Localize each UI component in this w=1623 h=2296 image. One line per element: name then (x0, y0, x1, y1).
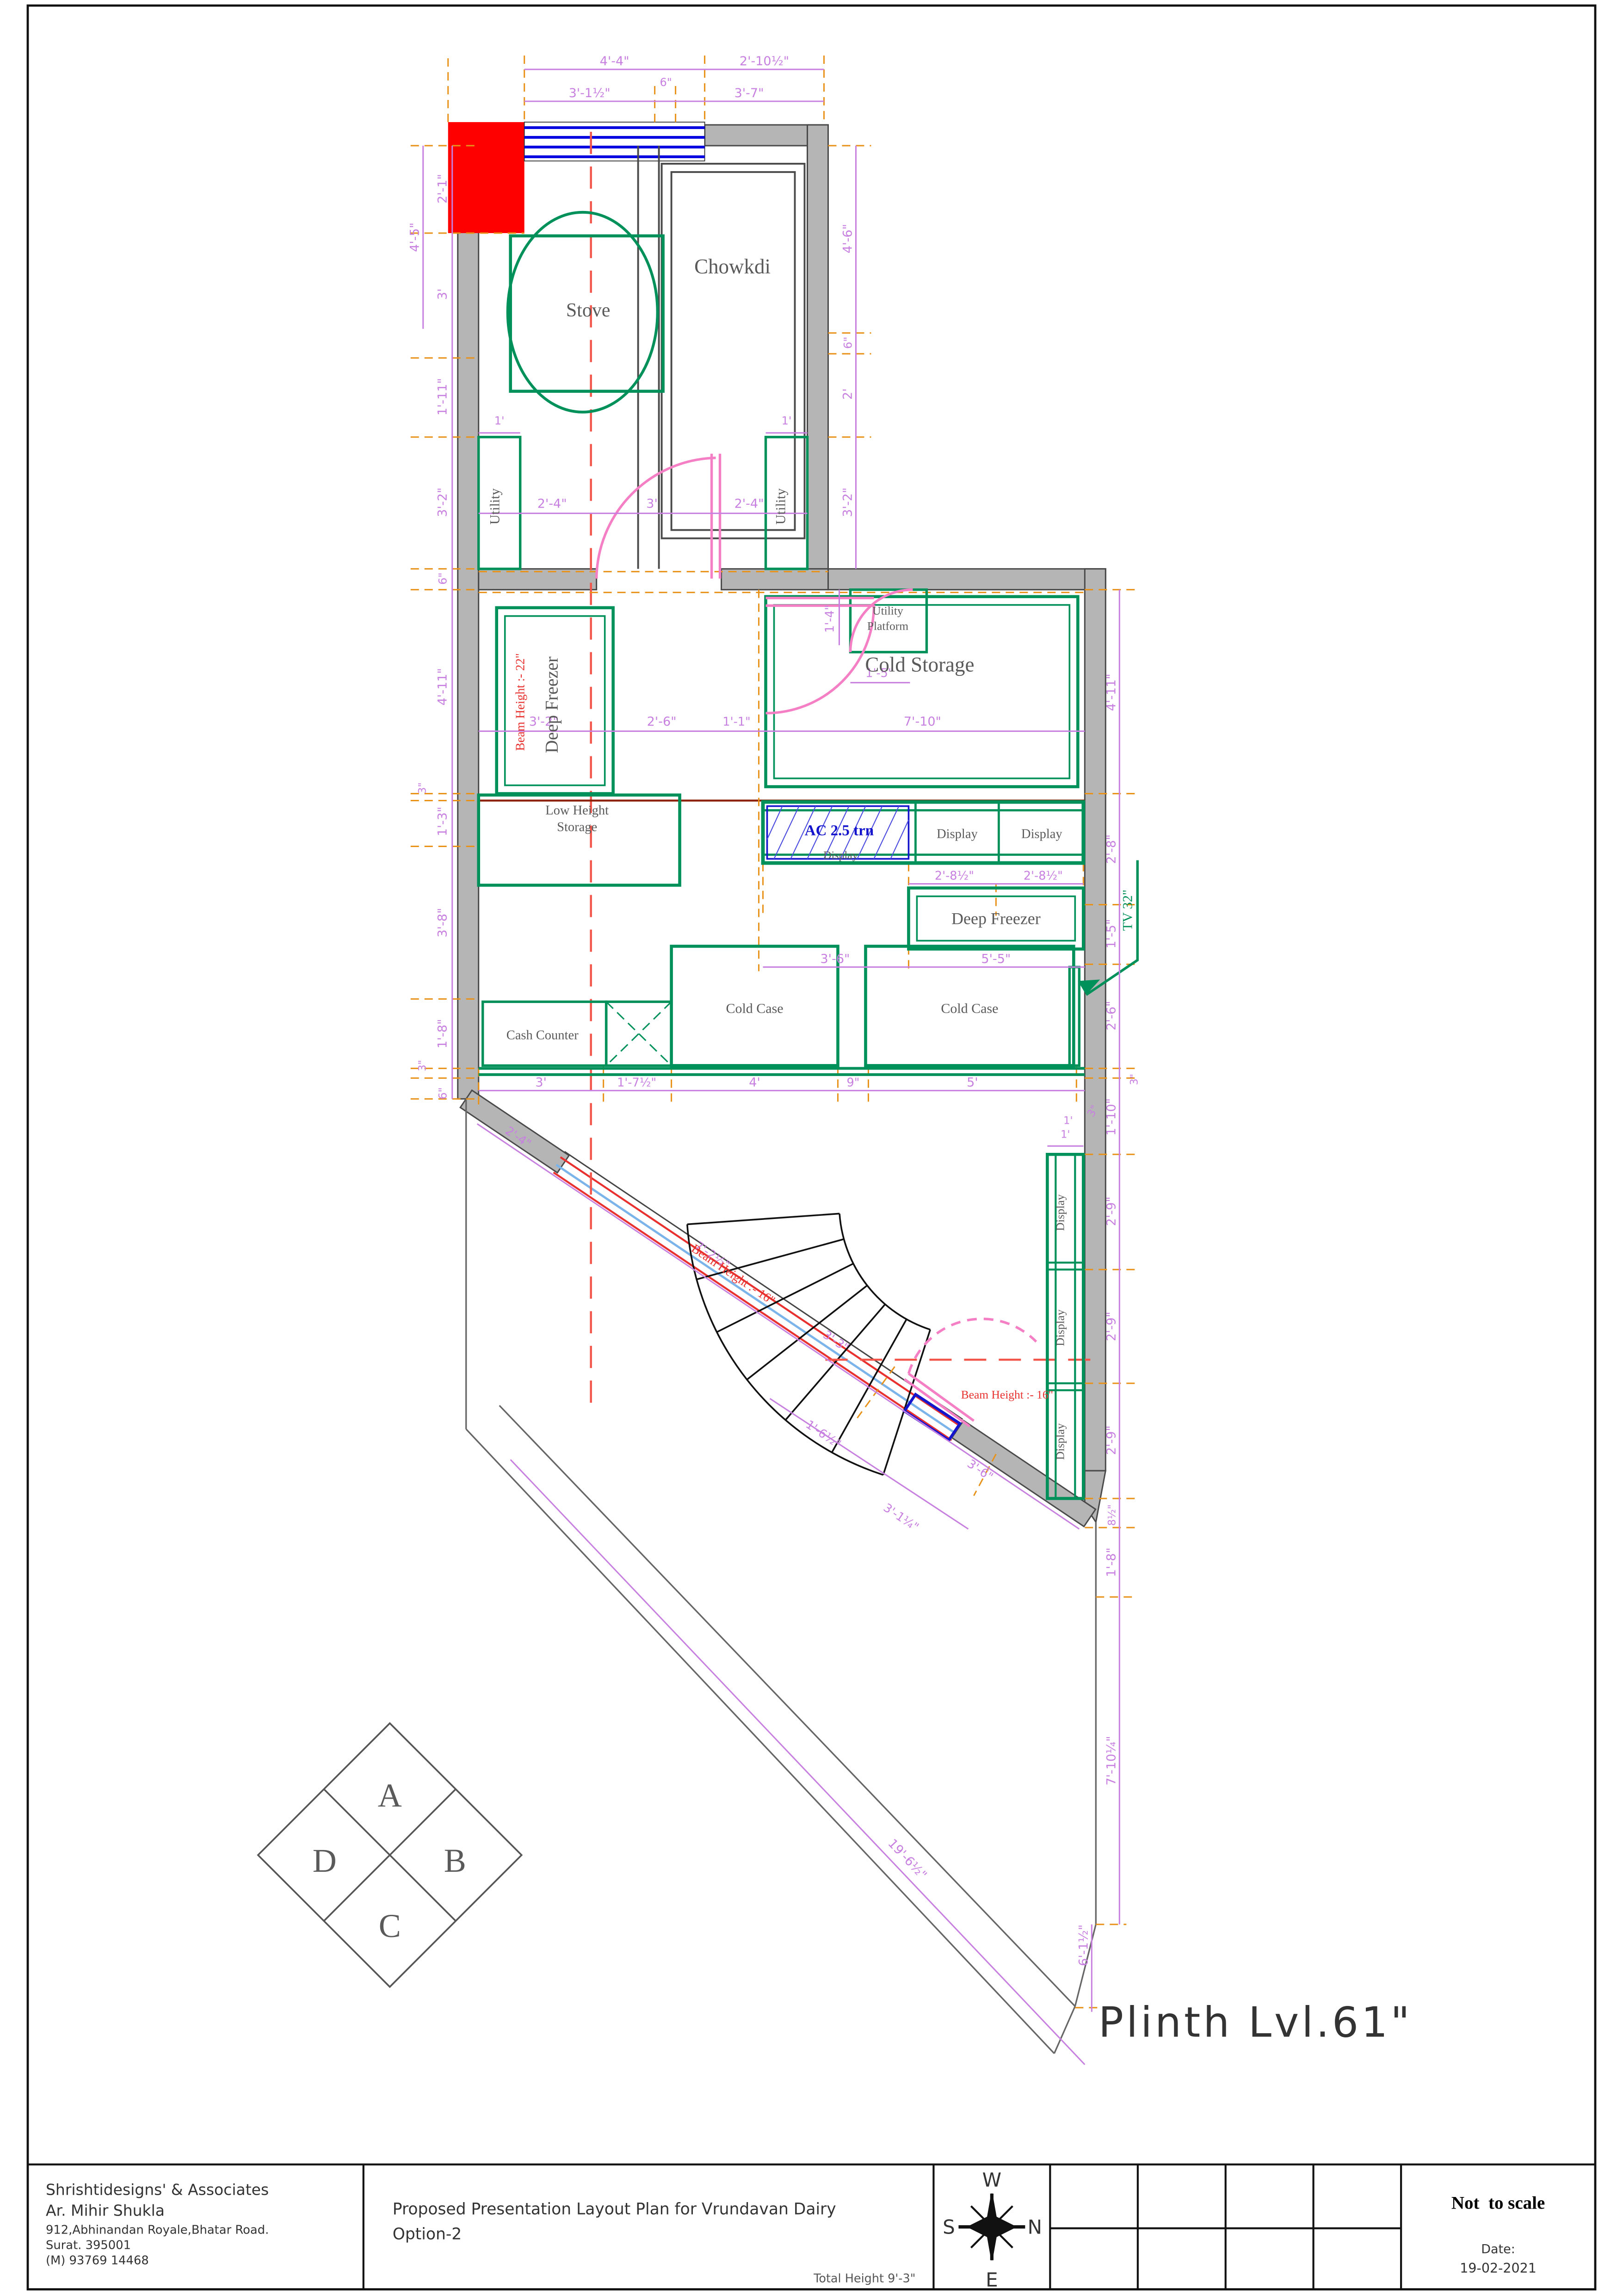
dims-right_outer-12: 7'-10¼" (1104, 1736, 1118, 1785)
direction_diamond-c: C (379, 1907, 401, 1944)
dims-counter_row-1: 1'-7½" (617, 1076, 656, 1089)
dims-freezer_row-0: 3'-6" (821, 952, 850, 966)
dims-top-0: 4'-4" (600, 54, 629, 68)
dims-right_outer-8: 2'-9" (1104, 1312, 1118, 1341)
plan-labels: 4'-4"2'-10½"3'-1½"6"3'-7"4'-5"2'-1"3'1'-… (313, 54, 1140, 1966)
dims-display_row-1: 2'-8½" (1024, 869, 1063, 883)
dims-diagonal-4: 1'-6½" (803, 1417, 843, 1451)
plot-boundary (466, 1099, 1096, 2053)
plinth-note: Plinth Lvl.61" (1098, 1999, 1413, 2047)
rooms-deep_freezer_low: Deep Freezer (951, 909, 1041, 928)
company-address1: 912,Abhinandan Royale,Bhatar Road. (46, 2223, 269, 2237)
direction_diamond-a: A (378, 1777, 402, 1814)
rooms-cash_counter: Cash Counter (506, 1028, 579, 1042)
dims-storage_row-2: 1'-1" (722, 715, 750, 729)
dims-right_outer-10: 8½" (1106, 1504, 1118, 1526)
compass-rose-icon (958, 2194, 1025, 2260)
dims-left-2: 1'-11" (436, 378, 450, 415)
dims-counter_row-2: 4' (749, 1075, 760, 1089)
rooms-display_2: Display (1021, 827, 1062, 841)
dims-top-3: 6" (660, 76, 672, 89)
dims-counter_row-0: 3' (535, 1075, 547, 1089)
company-block: Shrishtidesigns' & Associates Ar. Mihir … (46, 2181, 269, 2268)
dims-utility_row-3: 2'-4" (734, 497, 764, 511)
dims-utility_row-2: 3' (646, 497, 658, 511)
dims-left-0: 2'-1" (436, 174, 450, 204)
floor-plan: 4'-4"2'-10½"3'-1½"6"3'-7"4'-5"2'-1"3'1'-… (258, 54, 1413, 2065)
dims-right_inner-0: 4'-6" (840, 224, 855, 254)
dims-right_outer-2: 1'-5" (1104, 919, 1118, 948)
dims-diagonal-5: 3'-1¼" (881, 1501, 921, 1534)
rooms-cold_case_1: Cold Case (726, 1001, 783, 1016)
drawing-title-line1: Proposed Presentation Layout Plan for Vr… (393, 2200, 836, 2219)
dims-right_inner-2: 2' (840, 388, 855, 400)
rooms-cold_storage: Cold Storage (865, 653, 974, 676)
dims-counter_row-3: 9" (847, 1076, 860, 1089)
rooms-utility_right: Utility (773, 489, 789, 525)
scale-note: Not to scale (1451, 2193, 1545, 2213)
dims-left_outer-0: 4'-5" (408, 223, 422, 252)
compass-left: S (943, 2216, 955, 2239)
dims-counter_row-6: 1' (1063, 1114, 1073, 1126)
scale-date-block: Not to scale Date: 19-02-2021 (1451, 2193, 1545, 2276)
dims-platform-0: 1'-4" (823, 605, 837, 632)
dims-right_outer-9: 2'-9" (1104, 1425, 1118, 1455)
dims-right_outer-4: 3" (1128, 1074, 1140, 1085)
annotations-beam_16_low: Beam Height :- 16" (961, 1388, 1053, 1401)
drawing-title: Proposed Presentation Layout Plan for Vr… (393, 2200, 916, 2286)
annotations-ac: AC 2.5 trn (805, 822, 874, 839)
rooms-display_r3: Display (1053, 1423, 1067, 1460)
dims-right_outer-3: 2'-6" (1104, 1001, 1118, 1030)
rooms-display_r1: Display (1053, 1194, 1067, 1231)
rooms-utility_left: Utility (488, 489, 503, 525)
dims-left-7: 1'-3" (436, 807, 450, 836)
compass-top: W (982, 2169, 1002, 2191)
dims-left-11: 6" (437, 1087, 450, 1099)
dims-left-8: 3'-8" (436, 908, 450, 937)
rooms-deep_freezer_top: Deep Freezer (542, 656, 562, 753)
red-column (448, 122, 525, 233)
annotations-tv: TV 32" (1120, 890, 1135, 931)
dims-right_outer-11: 1'-8" (1104, 1547, 1118, 1577)
window-band (525, 122, 705, 161)
direction-diamond (258, 1723, 522, 1987)
dims-utility_row-1: 2'-4" (537, 497, 567, 511)
dims-top-1: 2'-10½" (740, 54, 789, 68)
company-name: Shrishtidesigns' & Associates (46, 2181, 269, 2199)
company-address2: Surat. 395001 (46, 2239, 131, 2253)
dims-right_inner-3: 3'-2" (840, 488, 855, 517)
dims-left-3: 3'-2" (436, 488, 450, 517)
dims-storage_row-1: 2'-6" (647, 715, 677, 729)
compass: W S N E (943, 2169, 1042, 2291)
company-architect: Ar. Mihir Shukla (46, 2202, 165, 2220)
rooms-utility_platform_l1: Utility (872, 604, 903, 618)
annotations-beam_22: Beam Height :- 22" (513, 653, 527, 751)
dims-right_outer-5: 1'-10" (1104, 1098, 1118, 1136)
compass-right: N (1028, 2216, 1042, 2239)
rooms-cold_case_2: Cold Case (941, 1001, 998, 1016)
dims-right_outer-6: 1' (1061, 1128, 1070, 1140)
title-block: Shrishtidesigns' & Associates Ar. Mihir … (28, 2165, 1595, 2291)
dims-right_outer-0: 4'-11" (1104, 674, 1118, 711)
dims-freezer_row-1: 5'-5" (981, 952, 1011, 966)
dims-left-1: 3' (436, 289, 450, 300)
rooms-display_mid: Display (823, 849, 858, 861)
drawing-title-line2: Option-2 (393, 2225, 462, 2244)
direction_diamond-b: B (444, 1842, 466, 1879)
dims-right_outer-1: 2'-8" (1104, 835, 1118, 864)
dims-right_outer-13: 6'-1½" (1076, 1925, 1091, 1966)
dims-left-5: 4'-11" (436, 668, 450, 706)
dims-boundary-0: 19'-6½" (885, 1836, 930, 1882)
dims-diagonal-2: 3'-3" (821, 1328, 852, 1355)
dims-left-9: 1'-8" (436, 1019, 450, 1048)
direction_diamond-d: D (313, 1842, 337, 1879)
total-height-note: Total Height 9'-3" (813, 2272, 915, 2286)
dims-left-10: 3" (417, 1060, 429, 1071)
rooms-low_height_l1: Low Height (545, 803, 609, 817)
rooms-utility_platform_l2: Platform (867, 619, 908, 633)
dims-storage_row-3: 7'-10" (904, 715, 941, 729)
dims-top-2: 3'-1½" (569, 86, 611, 100)
dims-display_row-0: 2'-8½" (935, 869, 974, 883)
rooms-stove: Stove (566, 300, 611, 321)
rooms-display_1: Display (937, 827, 978, 841)
date-value: 19-02-2021 (1460, 2261, 1537, 2276)
company-phone: (M) 93769 14468 (46, 2254, 149, 2268)
dims-left-4: 6" (437, 572, 450, 584)
dims-top-4: 3'-7" (734, 86, 764, 100)
rooms-chowkdi: Chowkdi (694, 255, 771, 278)
dims-right_inner-1: 6" (841, 337, 854, 349)
dims-utility_row-0: 1' (494, 415, 505, 427)
dims-utility_row-4: 1' (782, 415, 792, 427)
compass-bottom: E (986, 2269, 998, 2291)
dims-left-6: 3" (417, 782, 429, 794)
rooms-display_r2: Display (1053, 1309, 1067, 1346)
centerlines (591, 132, 1096, 1415)
dims-right_outer-7: 2'-9" (1104, 1196, 1118, 1226)
dims-counter_row-4: 5' (967, 1075, 978, 1089)
drawing-sheet: 4'-4"2'-10½"3'-1½"6"3'-7"4'-5"2'-1"3'1'-… (0, 0, 1623, 2295)
date-label: Date: (1481, 2242, 1515, 2257)
rooms-low_height_l2: Storage (557, 820, 597, 834)
